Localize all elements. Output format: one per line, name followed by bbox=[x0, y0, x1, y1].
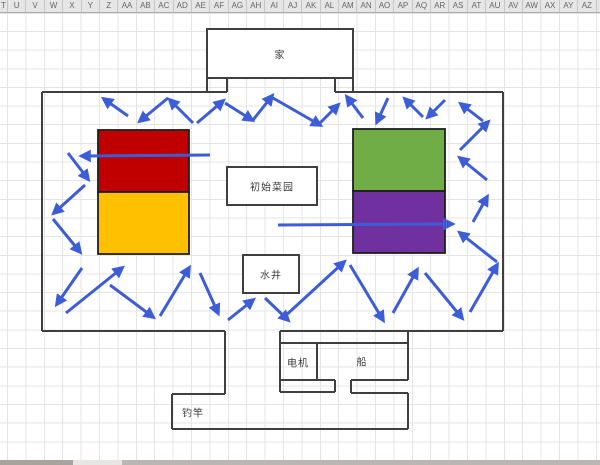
route-arrow-4[interactable] bbox=[57, 268, 82, 304]
route-arrow-5[interactable] bbox=[66, 268, 122, 313]
route-arrow-25[interactable] bbox=[200, 273, 218, 313]
route-arrow-22[interactable] bbox=[470, 265, 497, 312]
route-arrow-29[interactable] bbox=[350, 265, 383, 320]
well-label: 水井 bbox=[260, 267, 282, 282]
boat-label: 船 bbox=[357, 354, 368, 369]
route-arrow-2[interactable] bbox=[54, 185, 85, 213]
route-arrow-26[interactable] bbox=[228, 300, 253, 320]
bottom-bar-segment-2 bbox=[122, 460, 600, 465]
route-arrow-30[interactable] bbox=[393, 270, 417, 313]
route-arrow-16[interactable] bbox=[428, 100, 445, 117]
initial-garden-label: 初始菜园 bbox=[250, 179, 294, 194]
motor-label: 电机 bbox=[287, 355, 309, 370]
route-long-right[interactable] bbox=[278, 224, 452, 225]
route-arrow-6[interactable] bbox=[140, 98, 168, 121]
red-box[interactable] bbox=[98, 130, 189, 192]
route-arrow-21[interactable] bbox=[460, 233, 497, 262]
route-arrow-3[interactable] bbox=[53, 219, 80, 252]
route-arrow-24[interactable] bbox=[160, 268, 189, 316]
route-arrow-8[interactable] bbox=[197, 101, 223, 123]
route-arrow-20[interactable] bbox=[473, 197, 487, 222]
fishing-rod-label: 钓竿 bbox=[182, 405, 204, 420]
route-arrow-19[interactable] bbox=[460, 158, 487, 180]
route-arrow-14[interactable] bbox=[377, 98, 388, 122]
route-arrow-7[interactable] bbox=[170, 100, 193, 123]
green-box[interactable] bbox=[353, 129, 445, 191]
route-arrow-11[interactable] bbox=[273, 98, 320, 125]
bottom-bar-segment-1 bbox=[73, 460, 122, 465]
route-arrow-31[interactable] bbox=[425, 273, 462, 318]
route-arrow-13[interactable] bbox=[347, 97, 363, 118]
bottom-bar-segment-0 bbox=[0, 460, 73, 465]
route-arrow-10[interactable] bbox=[253, 96, 272, 120]
spreadsheet-app: TUVWXYZAAABACADAEAFAGAHAIAJAKALAMANAOAPA… bbox=[0, 0, 600, 465]
purple-box[interactable] bbox=[353, 191, 445, 253]
home-label: 家 bbox=[275, 47, 286, 62]
diagram bbox=[0, 0, 600, 465]
route-arrow-18[interactable] bbox=[460, 122, 488, 150]
route-arrow-0[interactable] bbox=[104, 99, 128, 116]
route-arrow-17[interactable] bbox=[461, 104, 483, 121]
route-arrow-9[interactable] bbox=[225, 103, 252, 120]
route-arrow-12[interactable] bbox=[318, 105, 338, 125]
yellow-box[interactable] bbox=[98, 192, 189, 254]
route-long-left[interactable] bbox=[82, 155, 210, 156]
route-arrow-23[interactable] bbox=[110, 285, 153, 317]
route-arrow-15[interactable] bbox=[405, 99, 423, 117]
